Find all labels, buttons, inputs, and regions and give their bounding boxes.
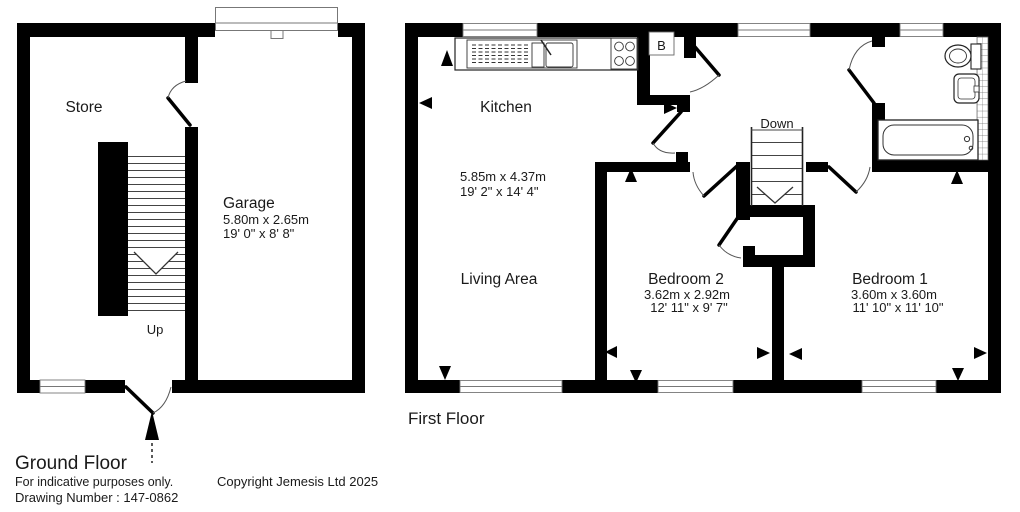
wall	[872, 160, 990, 172]
window	[463, 24, 537, 37]
wall	[185, 37, 198, 83]
marker-left-icon	[789, 348, 802, 360]
wall	[185, 127, 198, 381]
bathroom-fixtures	[878, 37, 988, 160]
landing-door-icon	[653, 112, 681, 153]
boiler-label: B	[657, 38, 666, 53]
garage-door	[216, 8, 338, 39]
wall	[936, 380, 1001, 393]
wall	[676, 152, 688, 172]
marker-up-icon	[951, 170, 963, 184]
wall	[733, 380, 862, 393]
kitchen-counter	[455, 38, 638, 70]
gf-stairs	[128, 150, 185, 317]
wall	[352, 23, 365, 393]
marker-right-icon	[974, 347, 987, 359]
wall	[988, 23, 1001, 393]
disclaimer-text: For indicative purposes only.	[15, 475, 173, 489]
first-floor-title: First Floor	[408, 409, 485, 428]
cupboard-door-icon	[719, 210, 743, 258]
wall	[405, 23, 463, 37]
wall	[677, 95, 690, 112]
window	[862, 381, 936, 393]
ff-windows	[460, 24, 943, 393]
bath-icon	[878, 120, 978, 160]
wall	[595, 162, 690, 172]
wall	[98, 142, 128, 316]
window	[738, 24, 810, 37]
wall	[772, 255, 784, 380]
ff-walls	[405, 23, 1001, 393]
wall	[637, 37, 650, 105]
wall	[562, 380, 658, 393]
ground-floor-plan: Store Garage 5.80m x 2.65m 19' 0" x 8' 8…	[15, 8, 365, 475]
basin-icon	[954, 74, 979, 103]
kitchen-label: Kitchen	[480, 99, 532, 116]
wall	[872, 37, 885, 47]
marker-down-icon	[952, 368, 964, 381]
kitchen-dim-metric: 5.85m x 4.37m	[460, 169, 546, 184]
wall	[537, 23, 738, 37]
bedroom2-label: Bedroom 2	[648, 271, 724, 288]
wall	[85, 380, 125, 393]
floorplan-page: Store Garage 5.80m x 2.65m 19' 0" x 8' 8…	[0, 0, 1020, 512]
window	[658, 381, 733, 393]
footer: For indicative purposes only. Drawing Nu…	[15, 474, 378, 505]
toilet-icon	[945, 44, 981, 69]
ff-stairs-label: Down	[760, 116, 793, 131]
drawing-number-text: Drawing Number : 147-0862	[15, 490, 178, 505]
garage-dim-imperial: 19' 0" x 8' 8"	[223, 226, 295, 241]
wall	[405, 380, 460, 393]
wall	[806, 162, 828, 172]
wall	[172, 380, 365, 393]
marker-right-icon	[757, 347, 770, 359]
bedroom2-door-icon	[693, 166, 737, 196]
stair-treads	[128, 150, 185, 317]
front-door-icon	[126, 387, 171, 413]
garage-label: Garage	[223, 195, 275, 212]
kitchen-dim-imperial: 19' 2" x 14' 4"	[460, 184, 539, 199]
bedroom1-label: Bedroom 1	[852, 271, 928, 288]
wall	[595, 162, 607, 380]
ground-floor-title: Ground Floor	[15, 453, 128, 474]
copyright-text: Copyright Jemesis Ltd 2025	[217, 474, 378, 489]
wall	[810, 23, 900, 37]
gf-walls	[17, 23, 365, 393]
marker-up-icon	[441, 50, 453, 66]
entrance-arrow-icon	[145, 411, 159, 463]
store-label: Store	[65, 99, 102, 116]
wall	[405, 23, 418, 393]
bathroom-door-icon	[849, 41, 874, 103]
garage-dim-metric: 5.80m x 2.65m	[223, 212, 309, 227]
living-area-label: Living Area	[461, 271, 538, 288]
first-floor-plan: B	[405, 23, 1001, 428]
marker-down-icon	[439, 366, 451, 380]
window	[900, 24, 943, 37]
bedroom1-door-icon	[829, 167, 870, 192]
bedroom1-dim-imperial: 11' 10" x 11' 10"	[852, 300, 943, 315]
wall	[17, 23, 215, 37]
gf-stairs-label: Up	[147, 322, 164, 337]
store-door-icon	[168, 81, 190, 125]
ff-stairs	[751, 127, 803, 206]
wall	[17, 23, 30, 393]
marker-left-icon	[419, 97, 432, 109]
boiler-cupboard: B	[649, 32, 674, 55]
window	[460, 381, 562, 393]
floorplan-drawing: Store Garage 5.80m x 2.65m 19' 0" x 8' 8…	[0, 0, 1020, 512]
bedroom2-dim-imperial: 12' 11" x 9' 7"	[650, 300, 728, 315]
gf-window	[40, 380, 85, 393]
wall	[17, 380, 40, 393]
